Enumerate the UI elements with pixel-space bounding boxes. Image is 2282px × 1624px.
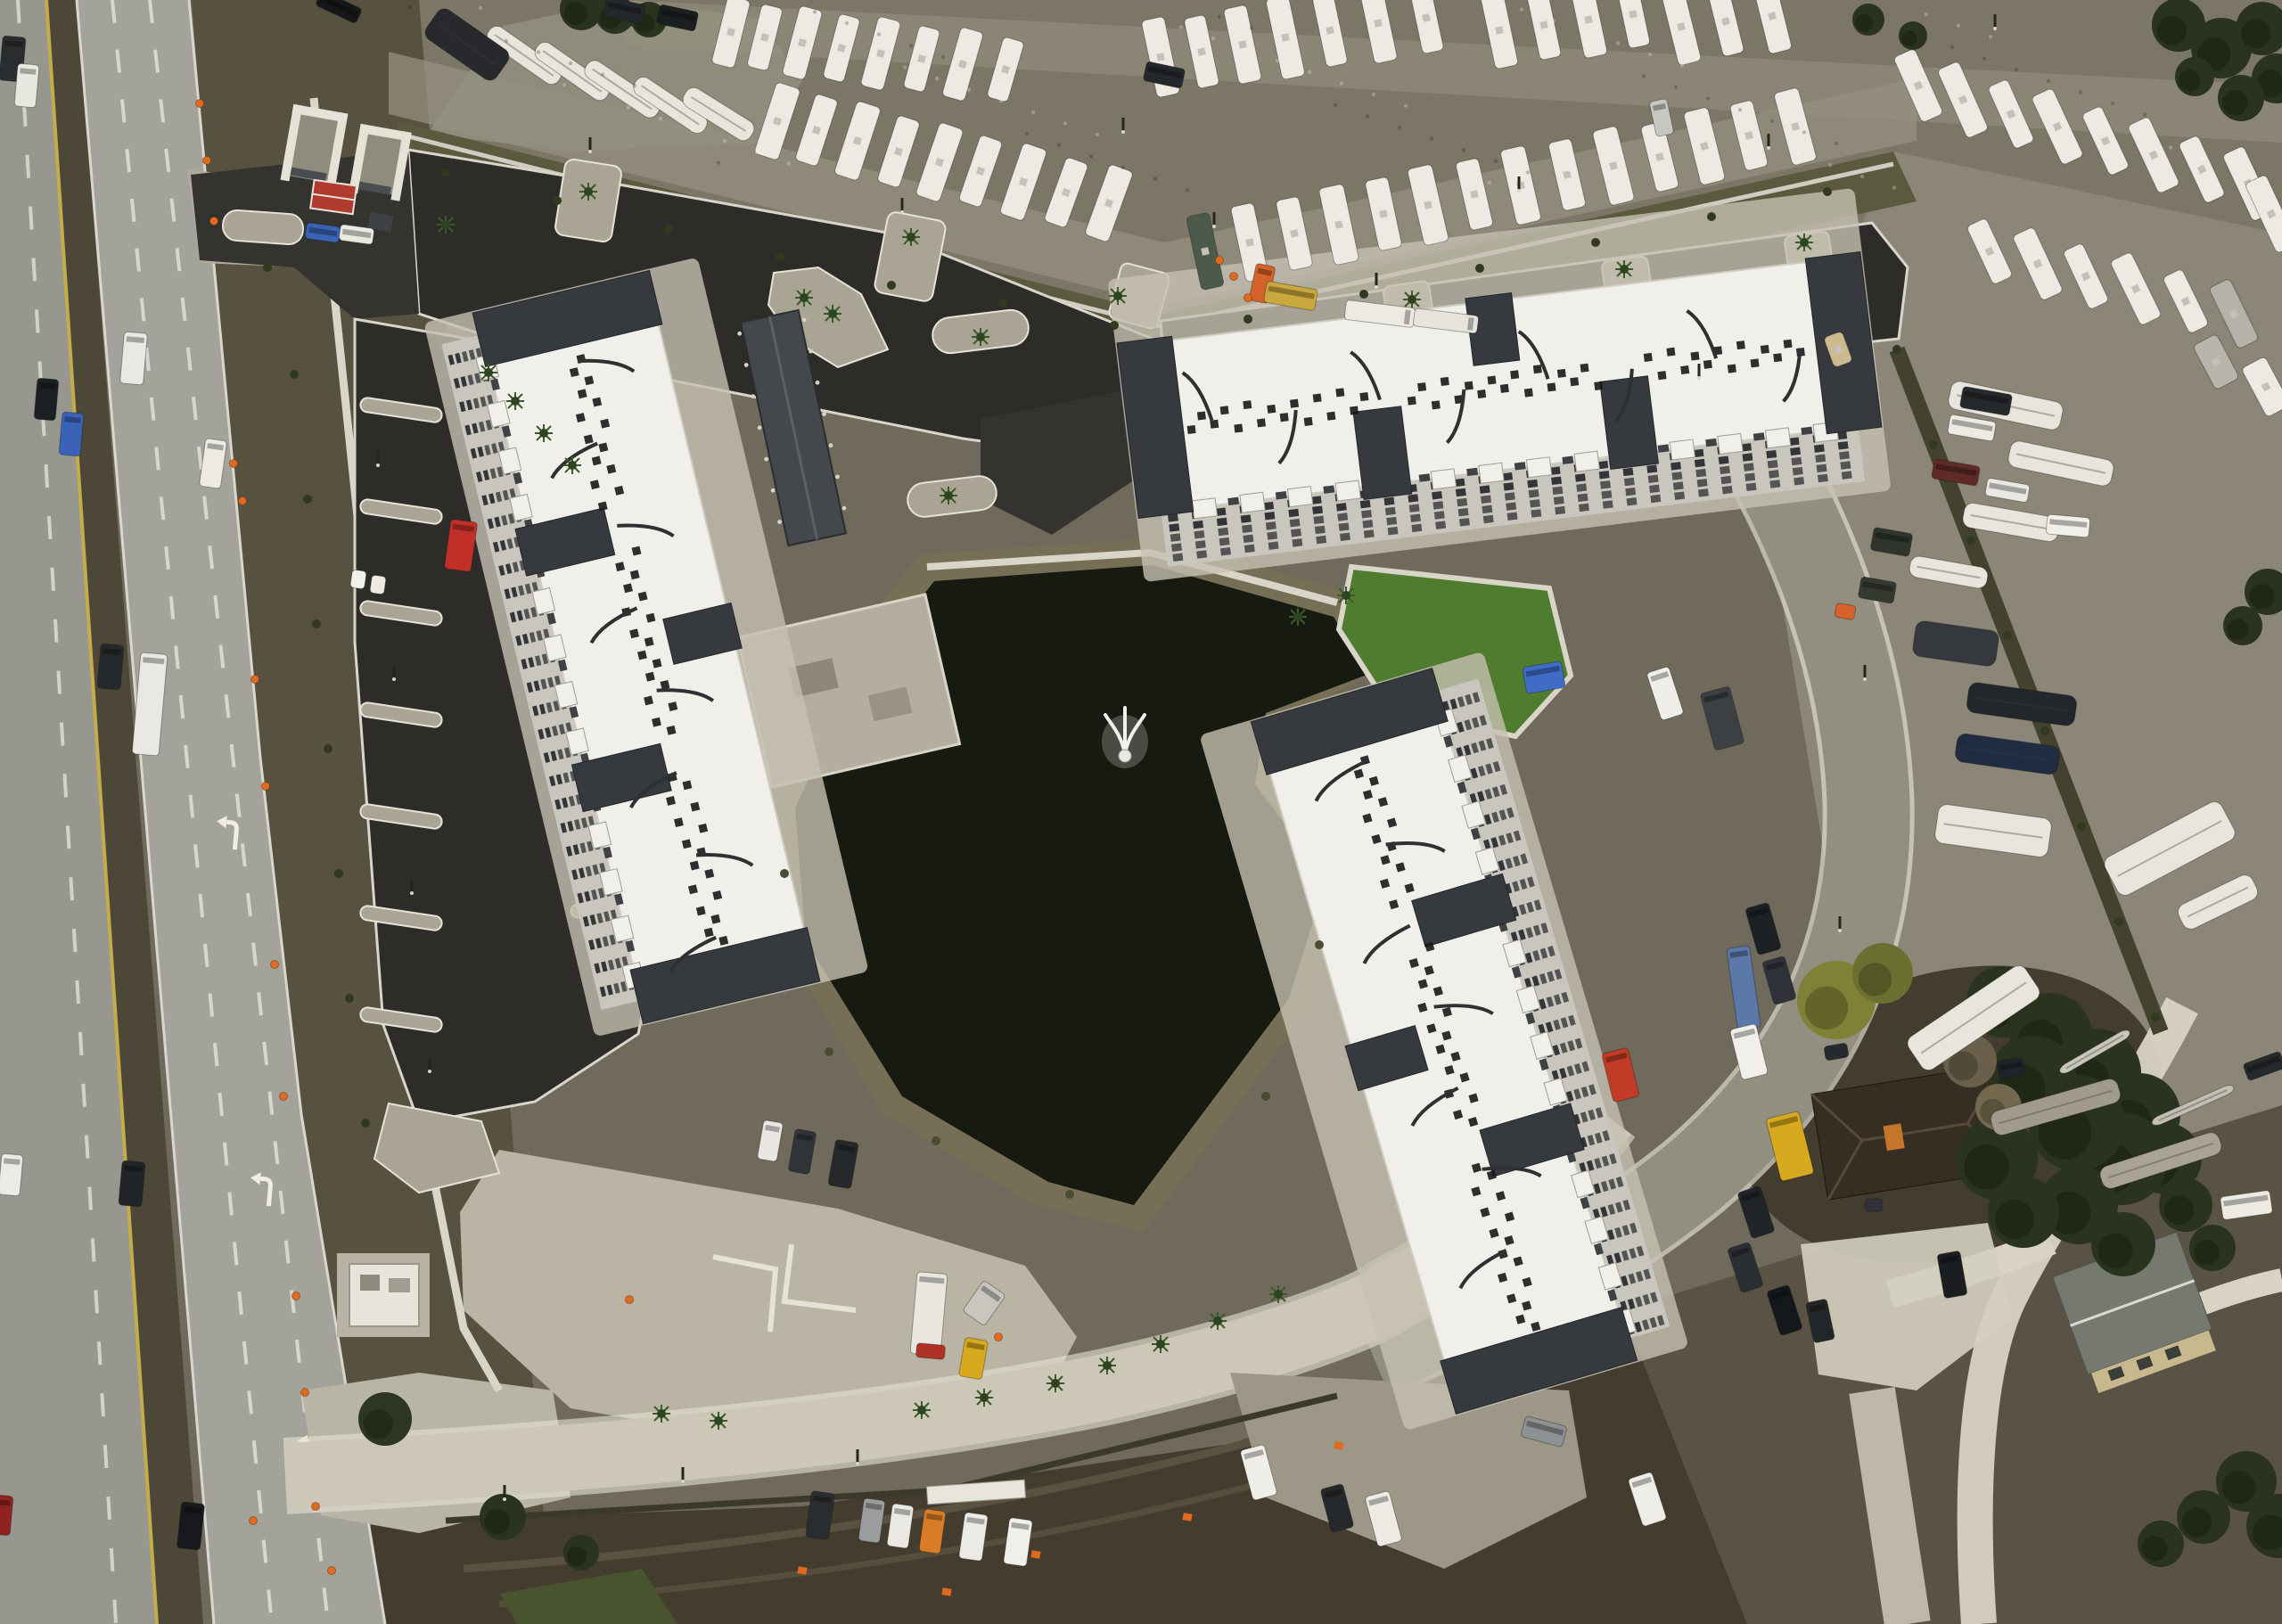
light-pole — [900, 198, 904, 214]
facade-window — [1457, 498, 1467, 506]
facade-window — [1409, 504, 1420, 512]
facade-window — [1481, 496, 1491, 504]
gravel-speckle — [871, 54, 874, 58]
gravel-speckle — [1089, 154, 1093, 158]
gravel-speckle — [2143, 112, 2147, 116]
facade-window — [1480, 485, 1490, 493]
roof-vent — [1417, 382, 1426, 391]
facade-window — [1578, 493, 1588, 501]
gravel-speckle — [505, 39, 508, 43]
tree — [358, 1392, 412, 1446]
palm-tree — [913, 1401, 931, 1419]
shrub — [2003, 631, 2012, 640]
utility-vent — [389, 1278, 410, 1292]
palm-tree — [579, 183, 597, 201]
facade-window — [1576, 483, 1587, 491]
roof-vent — [1580, 364, 1589, 373]
gravel-speckle — [1398, 126, 1401, 129]
shrub — [1244, 315, 1252, 324]
survey-flag — [1182, 1513, 1192, 1521]
roof-step — [1192, 498, 1217, 519]
facade-window — [1170, 533, 1181, 541]
roof-step — [1574, 451, 1599, 472]
roof-vent — [1267, 405, 1276, 414]
balcony-notch — [1753, 432, 1765, 440]
roof-vent — [1487, 375, 1496, 384]
facade-window — [1527, 480, 1538, 488]
survey-flag — [1334, 1441, 1343, 1450]
roof-vent — [1773, 353, 1782, 362]
facade-window — [1507, 512, 1518, 520]
facade-window — [1624, 478, 1635, 486]
utility-roof — [349, 1264, 419, 1326]
balcony-notch — [1227, 497, 1239, 505]
roof-step — [1335, 480, 1360, 501]
shrub — [324, 744, 332, 753]
roof-vent — [1210, 420, 1219, 429]
vehicle — [370, 575, 387, 595]
light-pole — [856, 1449, 859, 1465]
gravel-speckle — [1276, 59, 1279, 62]
traffic-cone — [995, 1333, 1003, 1341]
traffic-cone — [271, 961, 279, 969]
roof-vent — [1533, 365, 1542, 373]
gravel-speckle — [1244, 48, 1247, 52]
light-pole — [410, 879, 414, 895]
palm-tree — [1152, 1335, 1170, 1353]
facade-window — [1768, 460, 1778, 468]
roof-step — [1765, 428, 1790, 448]
gravel-speckle — [1211, 37, 1215, 40]
vehicle — [350, 570, 367, 589]
gravel-speckle — [1430, 136, 1433, 140]
roof-vent — [1326, 412, 1335, 421]
shrub — [303, 495, 312, 504]
facade-window — [1720, 476, 1731, 484]
palm-tree — [437, 216, 455, 234]
gravel-speckle — [440, 16, 444, 20]
gravel-speckle — [2015, 68, 2018, 71]
balcony-notch — [1276, 491, 1287, 499]
facade-window — [1601, 490, 1612, 498]
facade-window — [1337, 513, 1348, 521]
facade-window — [1531, 509, 1541, 517]
traffic-cone — [196, 100, 204, 108]
shrub — [1929, 440, 1938, 449]
roof-vent — [1594, 381, 1603, 390]
facade-window — [1794, 477, 1804, 485]
shrub — [312, 619, 321, 628]
gravel-speckle — [1796, 152, 1800, 156]
light-pole — [681, 1467, 685, 1483]
tree — [2189, 1225, 2236, 1271]
facade-window — [1600, 480, 1611, 488]
facade-window — [1265, 512, 1276, 520]
gravel-speckle — [1031, 111, 1035, 114]
facade-window — [1408, 494, 1418, 502]
roof-vent — [1465, 381, 1473, 390]
roof-vent — [1751, 358, 1760, 367]
shrub — [1359, 290, 1368, 299]
light-pole — [1863, 665, 1867, 681]
facade-window — [1218, 528, 1228, 536]
facade-window — [1241, 514, 1252, 522]
light-pole — [428, 1057, 431, 1073]
palm-tree — [1289, 608, 1307, 626]
light-pole — [1121, 118, 1125, 134]
gravel-speckle — [1186, 188, 1189, 192]
light-pole — [392, 665, 396, 681]
facade-window — [1769, 470, 1779, 478]
gravel-speckle — [1957, 24, 1960, 28]
facade-window — [1840, 461, 1851, 469]
light-pole — [1697, 364, 1701, 380]
palm-tree — [1403, 291, 1421, 308]
light-pole — [1767, 134, 1770, 150]
balcony-notch — [1658, 444, 1670, 452]
facade-window — [1313, 516, 1324, 524]
roof-vent — [1243, 400, 1252, 409]
facade-window — [1385, 507, 1396, 515]
shrub — [1315, 940, 1324, 949]
facade-window — [1171, 543, 1182, 551]
gravel-speckle — [1950, 45, 1954, 49]
facade-window — [1315, 526, 1326, 534]
shrub — [345, 994, 354, 1003]
traffic-cone — [292, 1292, 300, 1300]
facade-window — [1482, 505, 1492, 513]
gravel-speckle — [1828, 163, 1832, 167]
survey-flag — [797, 1566, 807, 1575]
gravel-speckle — [909, 44, 913, 47]
balcony-notch — [1801, 427, 1812, 435]
facade-window — [1312, 505, 1323, 513]
gravel-speckle — [1218, 15, 1221, 19]
traffic-cone — [1244, 294, 1252, 302]
roof-vent — [1280, 413, 1289, 422]
tree — [2175, 57, 2214, 96]
facade-window — [1172, 554, 1183, 562]
shrub — [553, 196, 562, 205]
gravel-speckle — [1989, 35, 1992, 38]
palm-tree — [653, 1405, 670, 1423]
roof-vent — [1313, 393, 1322, 402]
gravel-speckle — [1250, 26, 1253, 29]
roof-vent — [1761, 345, 1769, 354]
light-pole — [1993, 14, 1997, 30]
facade-window — [1195, 540, 1206, 548]
facade-window — [1622, 468, 1633, 476]
shrub — [825, 1047, 833, 1056]
gravel-speckle — [1366, 114, 1369, 118]
facade-window — [1339, 522, 1350, 530]
balcony-notch — [1323, 485, 1334, 493]
facade-window — [1575, 473, 1586, 481]
gravel-speckle — [1179, 25, 1183, 29]
roof-vent — [1728, 365, 1736, 373]
palm-tree — [1109, 287, 1127, 305]
palm-tree — [1795, 234, 1813, 251]
traffic-cone — [203, 157, 211, 165]
gravel-speckle — [1892, 185, 1896, 189]
facade-window — [1746, 483, 1757, 491]
roof-vent — [1187, 425, 1196, 434]
facade-window — [1384, 497, 1395, 505]
traffic-cone — [280, 1093, 288, 1101]
vehicle — [2046, 514, 2090, 537]
roof-vent — [1657, 371, 1666, 380]
traffic-cone — [1230, 273, 1238, 281]
facade-window — [1219, 537, 1230, 545]
gravel-speckle — [787, 161, 791, 165]
balcony-notch — [1562, 456, 1573, 464]
gravel-speckle — [1494, 160, 1498, 163]
roof-step — [1287, 487, 1312, 507]
roof-step — [1670, 439, 1695, 460]
gravel-speckle — [1308, 70, 1311, 74]
facade-window — [1555, 506, 1565, 514]
facade-window — [1719, 456, 1729, 464]
shrub — [2151, 1013, 2160, 1021]
vehicle — [176, 1502, 204, 1550]
facade-window — [1266, 521, 1276, 529]
palm-tree — [1337, 586, 1355, 604]
gravel-speckle — [1121, 166, 1125, 169]
facade-window — [1364, 529, 1375, 537]
vehicle — [119, 1161, 145, 1207]
traffic-cone — [251, 676, 259, 684]
facade-window — [1316, 536, 1326, 544]
facade-window — [1552, 487, 1563, 495]
facade-window — [1432, 501, 1443, 509]
facade-window — [1336, 503, 1347, 511]
traffic-cone — [210, 217, 218, 226]
facade-window — [1529, 489, 1539, 497]
palm-tree — [972, 328, 989, 346]
facade-window — [1244, 545, 1255, 553]
facade-window — [1242, 524, 1252, 532]
facade-window — [1649, 485, 1660, 493]
gravel-speckle — [2137, 135, 2140, 138]
gravel-speckle — [1153, 176, 1157, 180]
facade-window — [1720, 466, 1730, 474]
roof-vent — [1680, 365, 1689, 374]
gravel-speckle — [1057, 144, 1061, 147]
facade-window — [1698, 488, 1709, 496]
facade-window — [1503, 482, 1514, 490]
facade-window — [1817, 464, 1827, 472]
facade-window — [1722, 486, 1733, 494]
gravel-speckle — [877, 32, 881, 36]
light-pole — [376, 451, 380, 467]
facade-window — [1169, 523, 1179, 531]
traffic-cone — [328, 1567, 336, 1575]
tree — [1899, 21, 1927, 50]
gravel-speckle — [935, 77, 939, 80]
gravel-speckle — [2105, 123, 2108, 127]
roof-vent — [1408, 397, 1416, 406]
facade-window — [1627, 497, 1638, 505]
roof-vent — [1557, 369, 1566, 378]
gravel-speckle — [903, 65, 907, 69]
gravel-speckle — [813, 10, 817, 13]
gravel-speckle — [479, 6, 482, 10]
roof-vent — [1500, 384, 1509, 393]
facade-window — [1217, 518, 1227, 526]
facade-window — [1268, 541, 1279, 549]
shrub — [932, 1136, 940, 1145]
gravel-speckle — [1552, 19, 1556, 22]
gravel-speckle — [1674, 86, 1678, 89]
facade-window — [1459, 518, 1470, 526]
gravel-speckle — [562, 83, 566, 86]
facade-window — [1386, 517, 1397, 525]
roof-vent — [1304, 417, 1313, 426]
facade-window — [1818, 474, 1828, 482]
shrub — [361, 1119, 370, 1128]
facade-window — [1814, 444, 1825, 452]
facade-window — [1291, 529, 1301, 537]
light-pole — [503, 1485, 506, 1501]
vehicle — [97, 644, 124, 690]
roof-vent — [1220, 406, 1229, 414]
palm-tree — [563, 456, 581, 474]
gravel-speckle — [1648, 53, 1652, 56]
gravel-speckle — [1860, 175, 1864, 178]
roof-step — [1240, 492, 1265, 513]
facade-window — [1790, 447, 1801, 455]
gravel-speckle — [2111, 102, 2114, 105]
facade-window — [1625, 488, 1636, 496]
balcony-notch — [1514, 462, 1526, 470]
facade-window — [1766, 450, 1777, 458]
facade-window — [1842, 471, 1852, 479]
gravel-speckle — [1770, 119, 1774, 123]
facade-window — [1362, 520, 1373, 528]
tree — [1852, 943, 1913, 1004]
shrub — [780, 869, 789, 878]
roof-vent — [1510, 370, 1519, 379]
gravel-speckle — [691, 128, 694, 132]
palm-tree — [902, 228, 920, 246]
vehicle — [910, 1272, 948, 1357]
light-pole — [1517, 176, 1521, 193]
traffic-cone — [301, 1389, 309, 1397]
roof-step — [1431, 469, 1456, 489]
facade-window — [1434, 511, 1445, 519]
facade-window — [1838, 441, 1849, 449]
palm-tree — [1269, 1285, 1287, 1303]
gravel-speckle — [1835, 142, 1838, 145]
vehicle — [1865, 1199, 1883, 1211]
gravel-speckle — [1063, 121, 1067, 125]
facade-window — [1220, 547, 1231, 555]
balcony-notch — [1419, 473, 1431, 481]
facade-window — [1456, 488, 1466, 496]
traffic-cone — [626, 1296, 634, 1304]
gravel-speckle — [1642, 74, 1646, 78]
shrub — [263, 263, 272, 272]
shrub — [1966, 536, 1975, 545]
facade-window — [1290, 519, 1301, 527]
facade-window — [1483, 515, 1494, 523]
shrub — [776, 252, 784, 261]
facade-window — [1646, 464, 1657, 472]
facade-window — [1288, 509, 1299, 517]
gravel-speckle — [1802, 130, 1806, 134]
shrub — [1110, 321, 1119, 330]
gravel-speckle — [845, 21, 849, 25]
shrub — [334, 869, 343, 878]
facade-window — [1793, 467, 1803, 475]
roof-vent — [1666, 348, 1675, 357]
tree — [2218, 75, 2264, 121]
vehicle — [34, 378, 59, 421]
facade-window — [1815, 454, 1826, 462]
balcony-notch — [1466, 468, 1478, 476]
light-pole — [1375, 273, 1378, 289]
facade-window — [1603, 500, 1613, 508]
shrub — [998, 299, 1007, 308]
palm-tree — [795, 289, 813, 307]
facade-window — [1695, 459, 1705, 467]
roof-vent — [1290, 399, 1299, 408]
facade-window — [1292, 538, 1302, 546]
facade-window — [1267, 531, 1277, 539]
roof-vent — [1350, 406, 1359, 415]
shrub — [1707, 212, 1716, 221]
tree — [2177, 1490, 2230, 1544]
gravel-speckle — [2201, 157, 2204, 160]
shrub — [1475, 264, 1484, 273]
roof-vent — [1570, 377, 1579, 386]
gravel-speckle — [408, 5, 412, 9]
facade-window — [1505, 492, 1515, 500]
tree — [2159, 1178, 2212, 1232]
facade-window — [1432, 491, 1442, 499]
entry-kiosk — [310, 180, 357, 214]
gravel-speckle — [1096, 133, 1099, 136]
roof-vent — [1524, 389, 1533, 398]
roof-vent — [1234, 424, 1243, 433]
palm-tree — [710, 1412, 727, 1430]
roof-step — [1479, 463, 1504, 483]
light-pole — [1212, 212, 1216, 228]
gravel-speckle — [659, 117, 662, 120]
gravel-speckle — [1404, 104, 1408, 108]
roof-vent — [1441, 377, 1449, 386]
traffic-cone — [1216, 257, 1224, 265]
palm-tree — [1098, 1357, 1116, 1374]
tree — [2138, 1521, 2184, 1567]
facade-window — [1648, 475, 1659, 483]
roof-vent — [1703, 360, 1712, 369]
survey-flag — [1030, 1550, 1040, 1559]
facade-window — [1791, 457, 1802, 465]
gravel-speckle — [2079, 90, 2082, 94]
gravel-speckle — [2169, 145, 2172, 149]
shrub — [664, 225, 673, 234]
gravel-speckle — [1340, 81, 1343, 85]
tree — [2091, 1212, 2155, 1276]
gravel-speckle — [1520, 8, 1523, 12]
gravel-speckle — [717, 160, 720, 164]
facade-window — [1742, 453, 1753, 461]
facade-window — [1361, 510, 1372, 518]
gravel-speckle — [1025, 132, 1029, 135]
vehicle — [59, 412, 84, 456]
gravel-speckle — [1372, 93, 1375, 96]
